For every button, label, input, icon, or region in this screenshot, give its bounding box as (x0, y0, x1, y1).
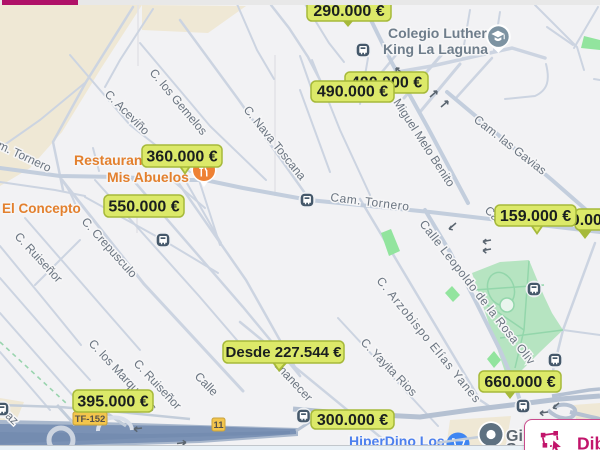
svg-text:King La Laguna: King La Laguna (383, 41, 488, 57)
svg-text:360.000 €: 360.000 € (146, 149, 217, 166)
svg-text:11: 11 (213, 420, 224, 431)
svg-text:Mis Abuelos: Mis Abuelos (107, 169, 189, 185)
svg-text:395.000 €: 395.000 € (77, 394, 148, 411)
svg-text:490.000 €: 490.000 € (317, 84, 388, 101)
svg-text:Desde 227.544 €: Desde 227.544 € (226, 344, 343, 361)
svg-text:TF-152: TF-152 (75, 414, 106, 425)
svg-text:300.000 €: 300.000 € (317, 412, 388, 429)
svg-text:Dibujar: Dibujar (577, 434, 600, 450)
svg-text:159.000 €: 159.000 € (500, 208, 571, 225)
svg-text:290.000 €: 290.000 € (313, 3, 384, 20)
svg-text:660.000 €: 660.000 € (484, 374, 555, 391)
svg-text:Restauran: Restauran (74, 152, 142, 168)
svg-text:Colegio Luther: Colegio Luther (388, 25, 487, 41)
svg-text:El Concepto: El Concepto (2, 201, 81, 216)
svg-text:550.000 €: 550.000 € (108, 199, 179, 216)
